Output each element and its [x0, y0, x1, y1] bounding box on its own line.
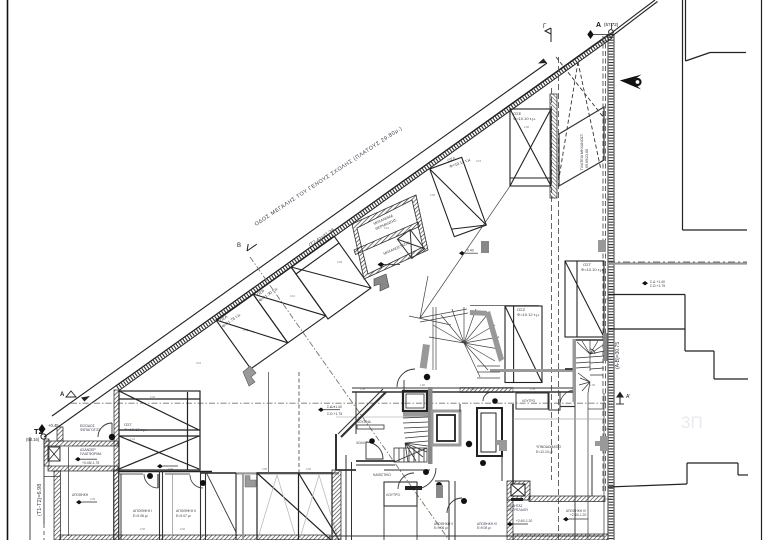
- svg-text:A: A: [60, 392, 65, 398]
- svg-text:Ε=9.08 μ²: Ε=9.08 μ²: [133, 514, 149, 518]
- svg-text:+0.45/-1.75: +0.45/-1.75: [82, 461, 99, 465]
- svg-text:3.60: 3.60: [306, 467, 312, 471]
- svg-text:3.15: 3.15: [476, 159, 482, 163]
- svg-text:Φ=10.12 τ.μ.: Φ=10.12 τ.μ.: [124, 427, 147, 432]
- svg-text:4.30: 4.30: [606, 197, 612, 201]
- svg-text:ΑΠΟΘΗΚΗ ΙΙ: ΑΠΟΘΗΚΗ ΙΙ: [176, 509, 196, 513]
- svg-text:A: A: [596, 22, 601, 29]
- svg-text:Ε=9.05 μ²: Ε=9.05 μ²: [477, 526, 491, 530]
- svg-text:3.10: 3.10: [290, 294, 296, 298]
- svg-text:ΑΠΟΘΗΚΗ Ι: ΑΠΟΘΗΚΗ Ι: [133, 509, 152, 513]
- svg-text:-0.85: -0.85: [597, 39, 607, 44]
- svg-text:Φ=10.10 τ.μ.: Φ=10.10 τ.μ.: [513, 116, 536, 121]
- svg-text:2.60: 2.60: [140, 527, 146, 531]
- svg-text:Σ.Ω.+1.75: Σ.Ω.+1.75: [327, 412, 342, 416]
- svg-text:1.95: 1.95: [590, 383, 596, 387]
- svg-text:Ε=9.07 μ²: Ε=9.07 μ²: [176, 514, 192, 518]
- svg-text:ΛΟΥΤΡΟ: ΛΟΥΤΡΟ: [522, 399, 536, 403]
- svg-text:(Α-Β)=30.75: (Α-Β)=30.75: [615, 342, 621, 369]
- svg-text:ΠΕΤΡΕΛΑΙΟΥ: ΠΕΤΡΕΛΑΙΟΥ: [508, 508, 529, 512]
- svg-text:Φ=10.10 τ.μ.: Φ=10.10 τ.μ.: [581, 267, 604, 272]
- svg-text:0.40: 0.40: [467, 249, 474, 253]
- svg-text:(Τ1-Τ2)=6.98: (Τ1-Τ2)=6.98: [37, 484, 43, 516]
- svg-text:2.95: 2.95: [337, 260, 343, 264]
- svg-text:ΚΟΥΖΙΝΑ: ΚΟΥΖΙΝΑ: [357, 420, 372, 424]
- svg-text:ΧΩΛΛ: ΧΩΛΛ: [356, 441, 366, 445]
- svg-text:Φ=10.12 τ.μ.: Φ=10.12 τ.μ.: [517, 312, 540, 317]
- svg-text:2.90: 2.90: [524, 125, 530, 129]
- svg-text:69.69/23.85: 69.69/23.85: [585, 149, 589, 168]
- svg-text:ΚΑΘΙΣΤΙΚΟ: ΚΑΘΙΣΤΙΚΟ: [373, 473, 391, 477]
- svg-text:2.60: 2.60: [180, 527, 186, 531]
- svg-text:3.10: 3.10: [196, 361, 202, 365]
- svg-text:(57.72): (57.72): [604, 22, 619, 27]
- svg-text:ΠΛΑΤΦΟΡΜΑ: ΠΛΑΤΦΟΡΜΑ: [80, 452, 102, 456]
- svg-text:2.60: 2.60: [430, 193, 436, 197]
- svg-text:+2.40/-1.20: +2.40/-1.20: [570, 513, 586, 517]
- svg-text:(58.16): (58.16): [26, 437, 40, 442]
- svg-text:Ε=9.06 μ²: Ε=9.06 μ²: [434, 526, 448, 530]
- svg-text:+2.40/-1.20: +2.40/-1.20: [516, 519, 532, 523]
- svg-text:Σ.Δ.+1.40: Σ.Δ.+1.40: [327, 405, 342, 409]
- svg-text:ΛΟΥΤΡΟ: ΛΟΥΤΡΟ: [386, 493, 400, 497]
- svg-text:3Π: 3Π: [681, 413, 703, 432]
- svg-text:3.85: 3.85: [262, 467, 268, 471]
- svg-text:Σ.Ω.+1.75: Σ.Ω.+1.75: [650, 284, 665, 288]
- svg-text:ΑΠΟΘΗΚΗ: ΑΠΟΘΗΚΗ: [72, 493, 89, 497]
- svg-text:2.35: 2.35: [90, 497, 96, 501]
- svg-text:ΠΛΑΤΕΙΑ ΜΗΧΑΝΟΣΤ.: ΠΛΑΤΕΙΑ ΜΗΧΑΝΟΣΤ.: [580, 133, 584, 170]
- svg-text:ΥΠΝΟΔΩΜΑΤΙΟ: ΥΠΝΟΔΩΜΑΤΙΟ: [536, 445, 561, 449]
- svg-text:1.80: 1.80: [420, 383, 426, 387]
- svg-text:Β: Β: [237, 243, 241, 249]
- svg-text:Ε=12.10 μ²: Ε=12.10 μ²: [536, 450, 554, 454]
- svg-text:A': A': [626, 394, 630, 400]
- svg-text:ΦΩΤΑΓΩΓΟΣ: ΦΩΤΑΓΩΓΟΣ: [80, 428, 100, 432]
